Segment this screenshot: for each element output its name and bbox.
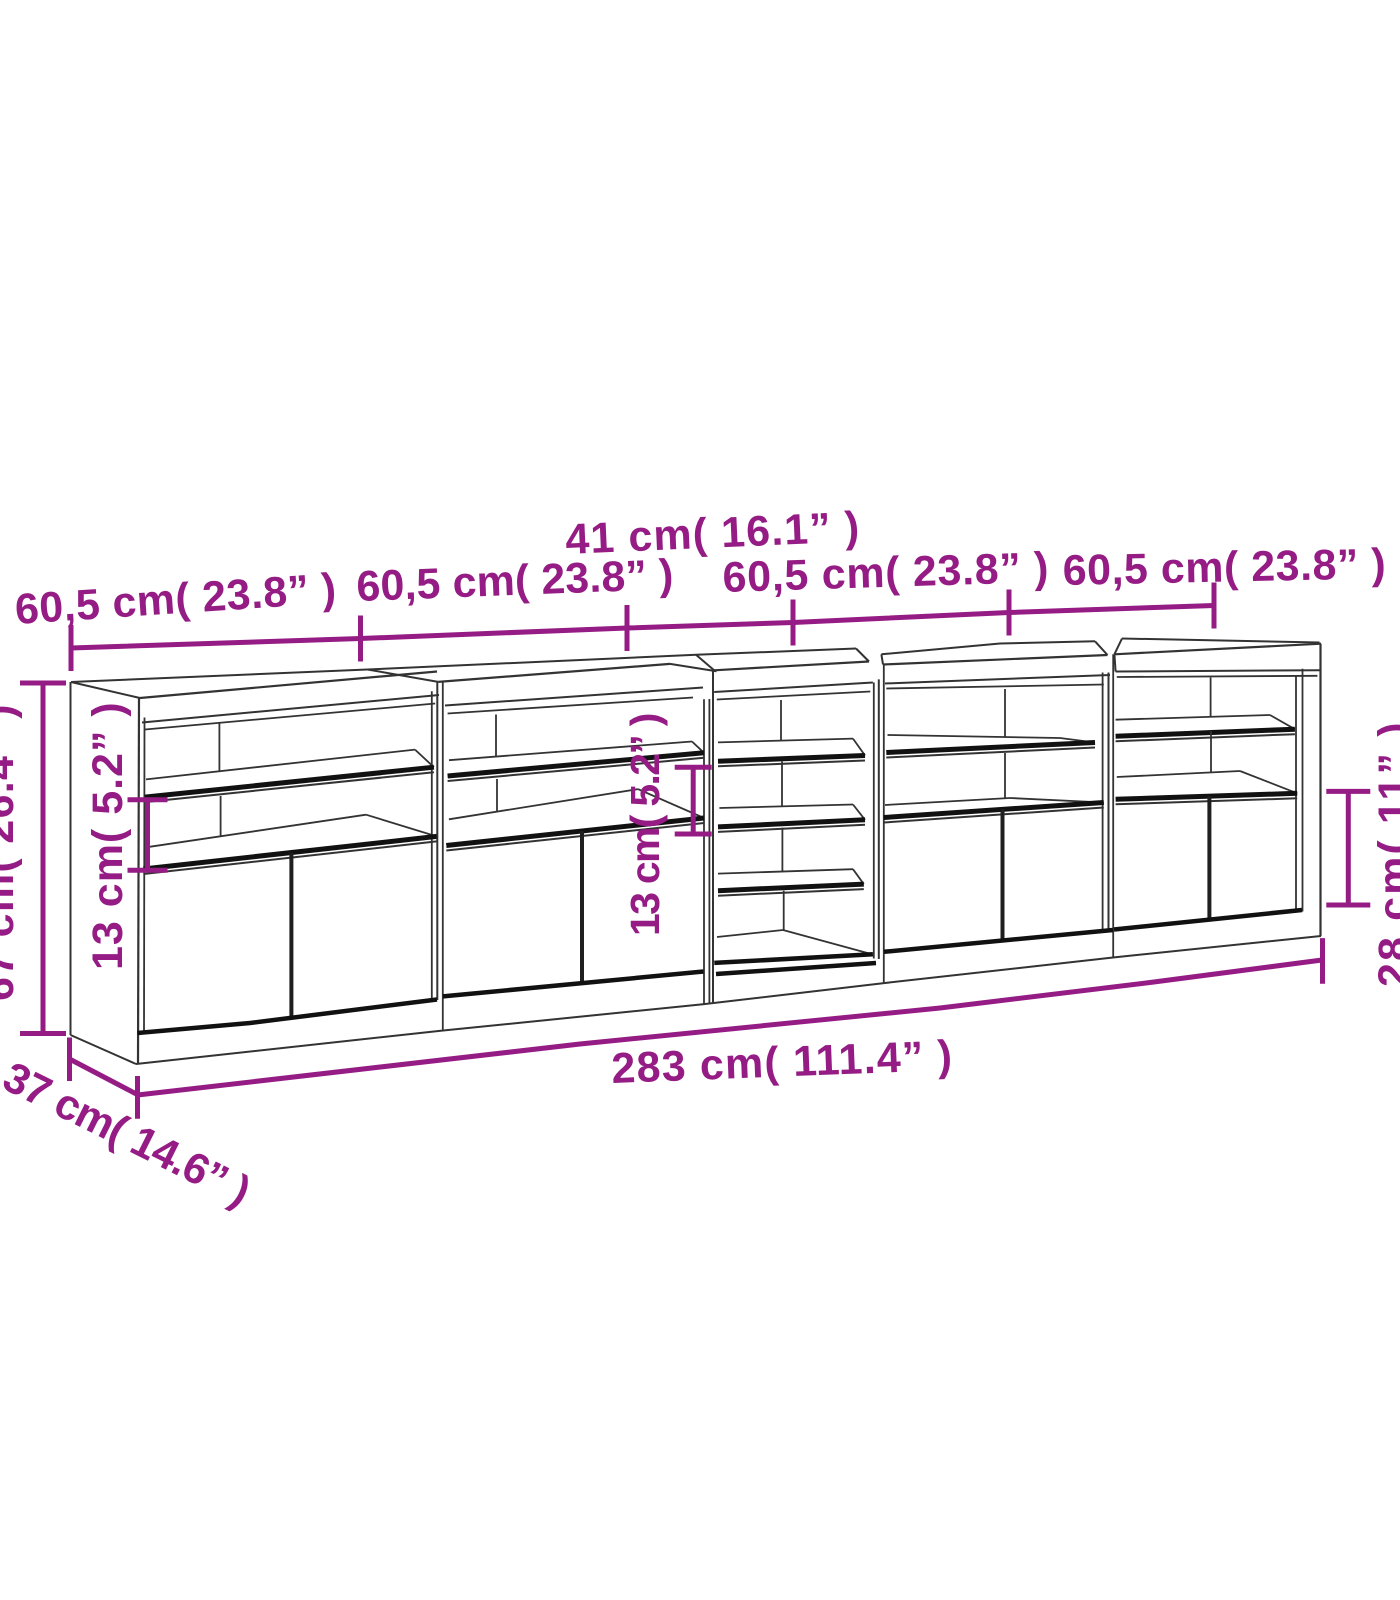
svg-text:13 cm( 5.2” ): 13 cm( 5.2” ) (622, 714, 668, 936)
svg-text:67 cm( 26.4” ): 67 cm( 26.4” ) (0, 703, 23, 1001)
svg-text:28 cm( 11” ): 28 cm( 11” ) (1370, 720, 1400, 987)
svg-text:60,5 cm( 23.8” ): 60,5 cm( 23.8” ) (722, 544, 1050, 602)
svg-text:13 cm( 5.2” ): 13 cm( 5.2” ) (84, 701, 132, 970)
svg-text:60,5 cm( 23.8” ): 60,5 cm( 23.8” ) (1062, 540, 1386, 595)
